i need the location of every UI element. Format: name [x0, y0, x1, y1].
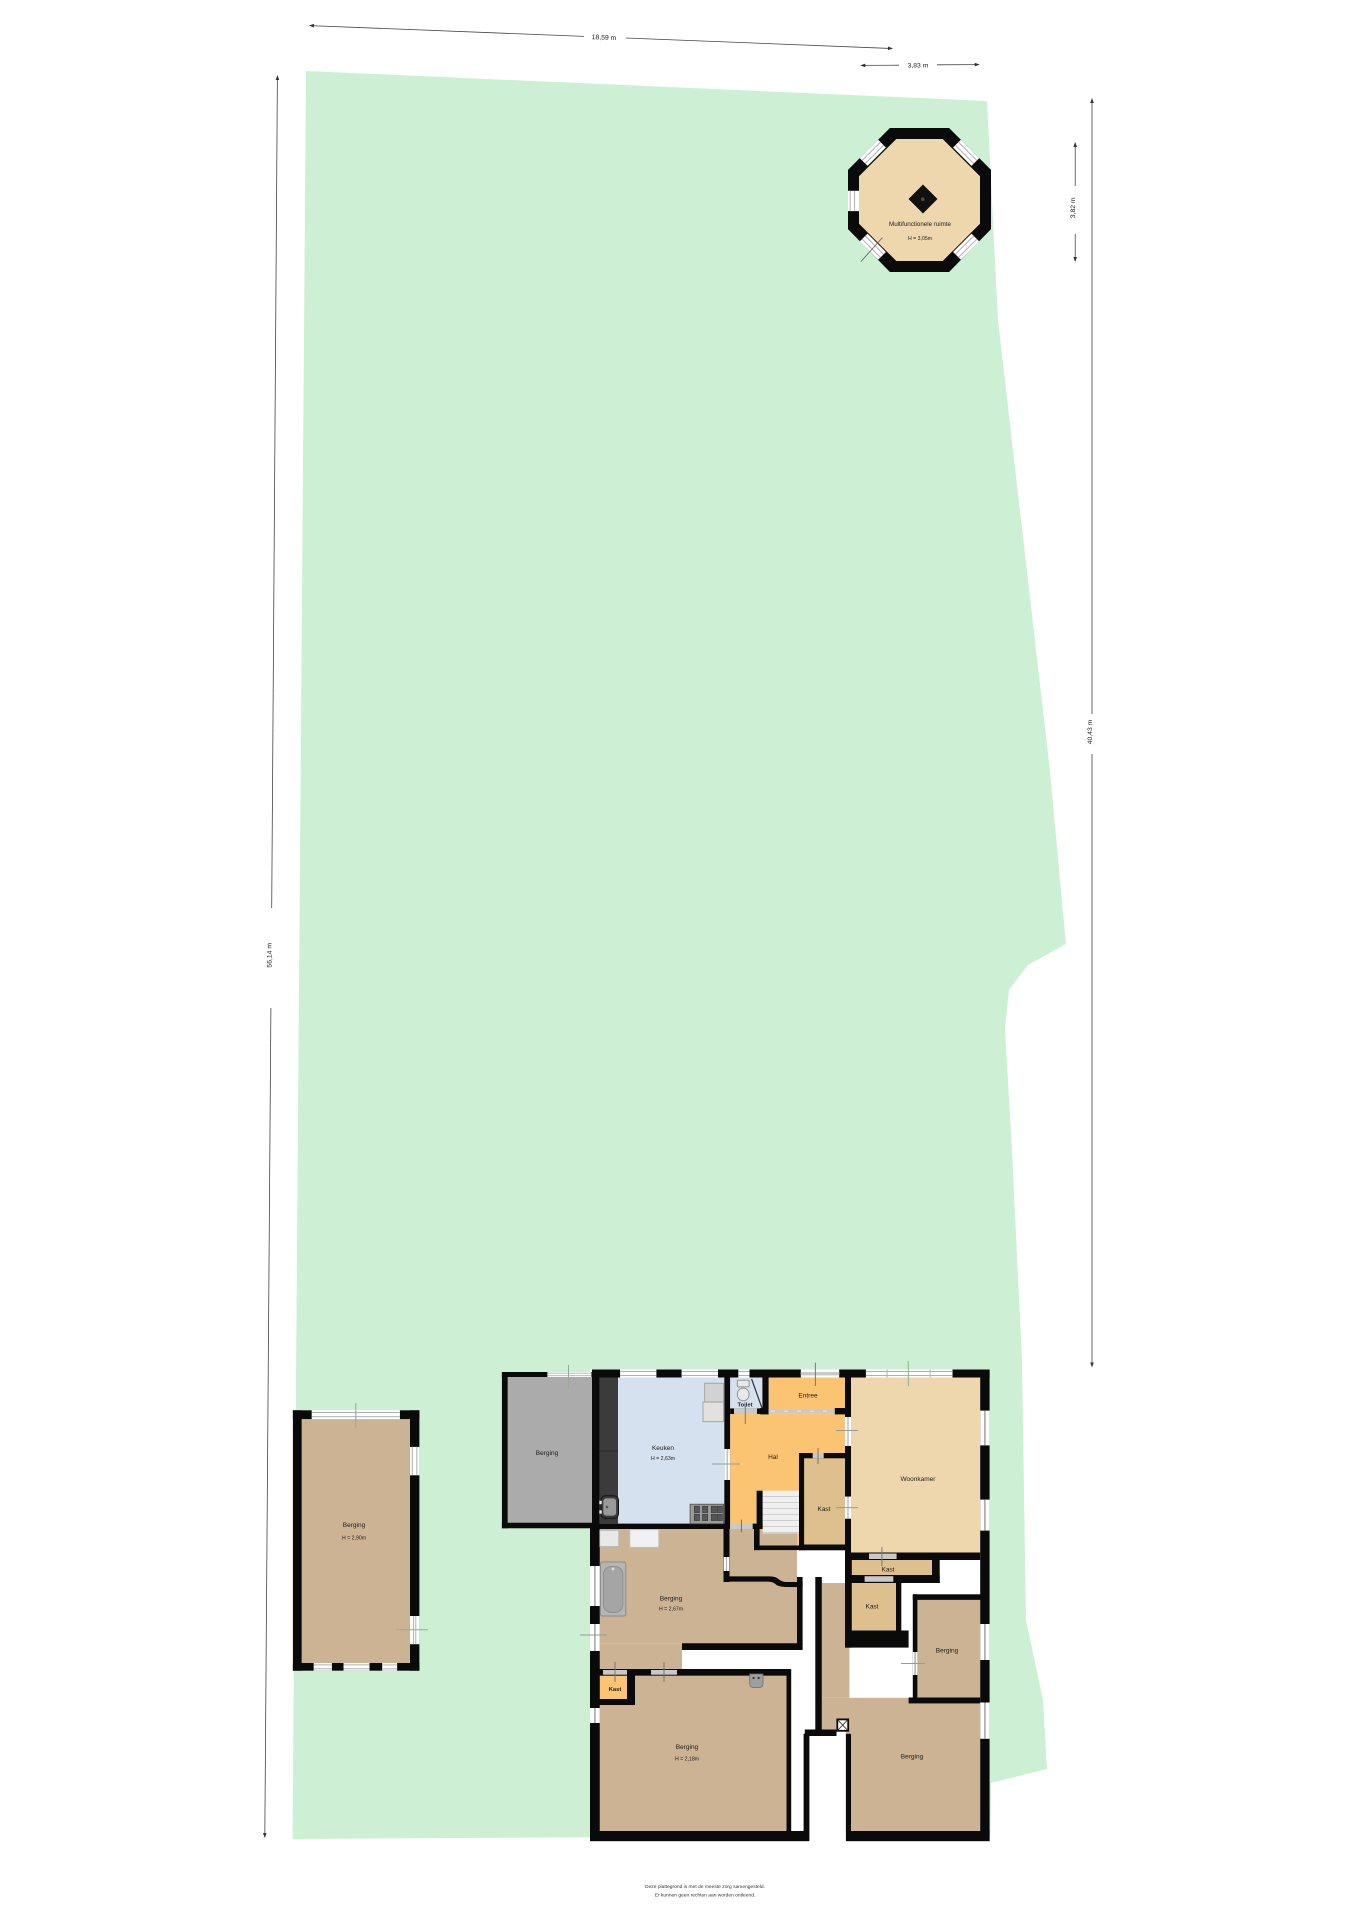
svg-text:Entree: Entree: [798, 1393, 818, 1400]
svg-text:Hal: Hal: [768, 1454, 778, 1461]
svg-text:H = 2,63m: H = 2,63m: [651, 1456, 675, 1462]
svg-text:Deze plattegrond is met de mee: Deze plattegrond is met de meeste zorg s…: [645, 1884, 765, 1890]
svg-text:Toilet: Toilet: [737, 1403, 752, 1409]
svg-text:3,82 m: 3,82 m: [1070, 197, 1077, 218]
svg-text:H = 2,90m: H = 2,90m: [342, 1536, 366, 1542]
svg-text:Berging: Berging: [343, 1522, 366, 1529]
svg-text:Kast: Kast: [817, 1506, 830, 1513]
svg-text:Berging: Berging: [676, 1744, 699, 1751]
svg-text:Berging: Berging: [660, 1596, 683, 1603]
svg-text:Berging: Berging: [936, 1648, 959, 1655]
svg-text:Kast: Kast: [609, 1687, 622, 1693]
svg-text:H = 3,05m: H = 3,05m: [908, 236, 932, 242]
svg-text:Er kunnen geen rechten aan wor: Er kunnen geen rechten aan worden ontlee…: [655, 1893, 756, 1899]
svg-text:Berging: Berging: [536, 1450, 559, 1457]
svg-text:Berging: Berging: [901, 1754, 924, 1761]
svg-text:Woonkamer: Woonkamer: [901, 1476, 937, 1483]
svg-text:18,59 m: 18,59 m: [592, 34, 617, 42]
svg-text:Kast: Kast: [881, 1567, 894, 1574]
svg-text:Keuken: Keuken: [652, 1445, 674, 1452]
svg-text:Multifunctionele ruimte: Multifunctionele ruimte: [889, 221, 951, 228]
svg-text:H = 2,67m: H = 2,67m: [659, 1607, 683, 1613]
svg-text:H = 2,18m: H = 2,18m: [675, 1757, 699, 1763]
svg-text:Kast: Kast: [865, 1604, 878, 1611]
svg-text:3,83 m: 3,83 m: [908, 62, 929, 69]
svg-text:40,43 m: 40,43 m: [1087, 719, 1094, 744]
svg-text:56,14 m: 56,14 m: [266, 943, 273, 968]
